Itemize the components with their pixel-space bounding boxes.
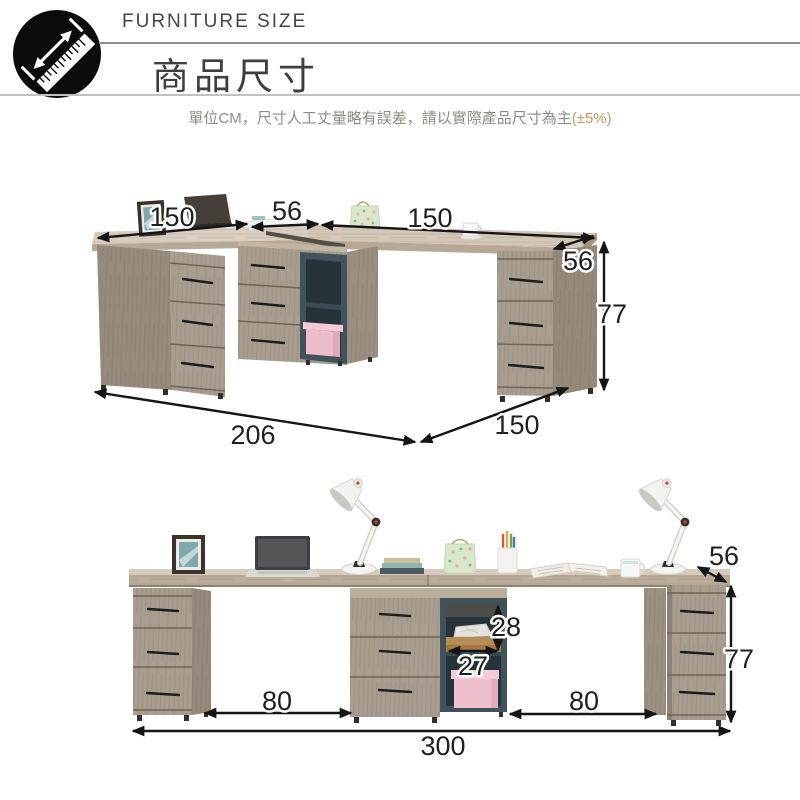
gift-bag [444, 540, 476, 574]
desk-lamp-left [327, 470, 380, 575]
middle-cabinet-with-shelf [238, 241, 378, 366]
dim-right-clearance: 80 [569, 686, 599, 716]
dim-shelf-height: 28 [491, 612, 521, 642]
dim-shelf-width: 27 [458, 651, 488, 681]
desk-props [172, 470, 689, 578]
dim-total-width: 300 [420, 731, 465, 761]
pink-storage-box [303, 322, 343, 357]
header-divider-main [0, 94, 800, 96]
ruler-measure-icon [6, 4, 110, 108]
l-shaped-desk-diagram: 150 56 150 56 77 206 150 [0, 168, 800, 468]
dim-right-width: 150 [407, 203, 452, 233]
dim-depth: 56 [709, 541, 739, 571]
page-title: 商品尺寸 [152, 46, 320, 100]
pencil-cup [498, 531, 517, 573]
mug [621, 559, 644, 577]
dim-corner-width: 56 [272, 196, 302, 226]
dim-height: 77 [597, 299, 627, 329]
dim-height: 77 [724, 644, 754, 674]
gift-bag [350, 202, 380, 229]
left-drawer-cabinet [133, 588, 211, 721]
desk-lamp-right [636, 470, 689, 575]
dim-left-clearance: 80 [262, 686, 292, 716]
photo-frame [172, 535, 205, 574]
left-drawer-cabinet [97, 245, 225, 399]
straight-desk-diagram: 56 77 28 27 80 80 300 [0, 470, 800, 800]
cabinet-feet [671, 720, 721, 726]
tolerance-note: (±5%) [572, 110, 612, 127]
disclaimer-text: 單位CM，尺寸人工丈量略有誤差，請以實際產品尺寸為主 [188, 110, 571, 127]
laptop [245, 536, 320, 577]
measure-disclaimer: 單位CM，尺寸人工丈量略有誤差，請以實際產品尺寸為主(±5%) [0, 107, 800, 128]
dim-right-depth: 56 [563, 246, 593, 276]
brand-label: FURNITURE SIZE [122, 11, 307, 33]
book-stack [380, 558, 424, 574]
right-drawer-cabinet [667, 585, 726, 726]
header-divider-top [99, 42, 800, 44]
dim-bottom-depth: 150 [494, 410, 539, 440]
dim-left-width: 150 [149, 202, 194, 232]
dim-left-total: 206 [230, 420, 275, 450]
